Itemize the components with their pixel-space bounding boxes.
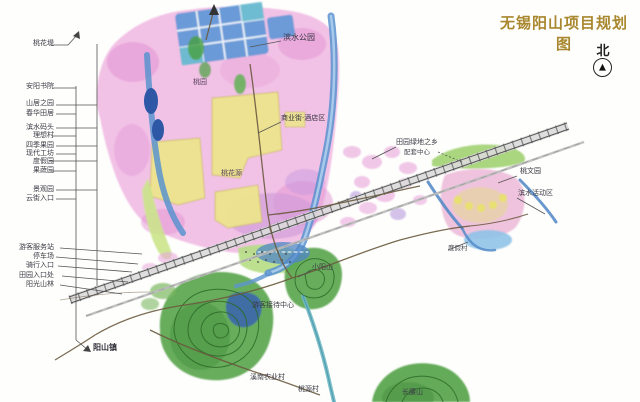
north-compass-icon: ▲ <box>593 58 612 77</box>
north-arrow-glyph: ▲ <box>599 62 606 72</box>
annotation-label: 果蔬园 <box>0 167 54 175</box>
map-label-commercial-street: 商业街·酒店区 <box>281 115 325 123</box>
annotation-label: 山居之园 <box>0 100 54 108</box>
annotation-label: 安阳书院 <box>0 83 54 91</box>
map-label-peach-orchard: 桃园 <box>193 79 207 87</box>
map-label-yangshan-town: 阳山镇 <box>93 344 117 353</box>
map-label-waterfront-park: 滨水公园 <box>283 34 315 43</box>
annotation-label: 游客服务站 <box>0 244 54 252</box>
annotation-label: 骑行入口 <box>0 262 54 270</box>
planning-map-page: 无锡阳山项目规划图 北 ▲ 桃花堤 安阳书院 山居之园 春华田居 滨水码头 理想… <box>0 0 640 402</box>
annotation-label: 春华田居 <box>0 110 54 118</box>
annotation-label: 桃花堤 <box>28 40 54 48</box>
map-label-resort: 度假村 <box>448 245 468 252</box>
annotation-label: 阳光山林 <box>0 281 54 289</box>
annotation-label: 景观园 <box>0 186 54 194</box>
annotation-label: 度假园 <box>0 158 54 166</box>
map-label-small-hill: 小阳山 <box>312 264 333 272</box>
watercolor-areas <box>97 2 525 402</box>
map-label-service-center: 配套中心 <box>404 149 430 156</box>
map-label-hill-name: 长腰山 <box>402 389 423 397</box>
map-label-visitor-center: 游客接待中心 <box>252 302 294 310</box>
annotation-label: 田园入口处 <box>0 272 54 280</box>
map-label-peach-garden: 桃文园 <box>520 168 541 176</box>
map-label-farm-village: 溪南农业村 <box>250 374 285 382</box>
map-label-garden-countryside: 田园绿地之乡 <box>396 139 438 147</box>
map-label-peach-village: 桃源村 <box>298 386 319 394</box>
map-label-peach-source: 桃花源 <box>221 170 242 178</box>
town-arrowhead <box>83 345 91 352</box>
annotation-label: 云街入口 <box>0 195 54 203</box>
annotation-label: 理想村 <box>0 132 54 140</box>
annotation-label: 停车场 <box>0 253 54 261</box>
north-label: 北 <box>592 40 614 59</box>
map-drawing <box>0 0 640 402</box>
map-label-waterfront-activity: 滨水活动区 <box>518 190 553 198</box>
